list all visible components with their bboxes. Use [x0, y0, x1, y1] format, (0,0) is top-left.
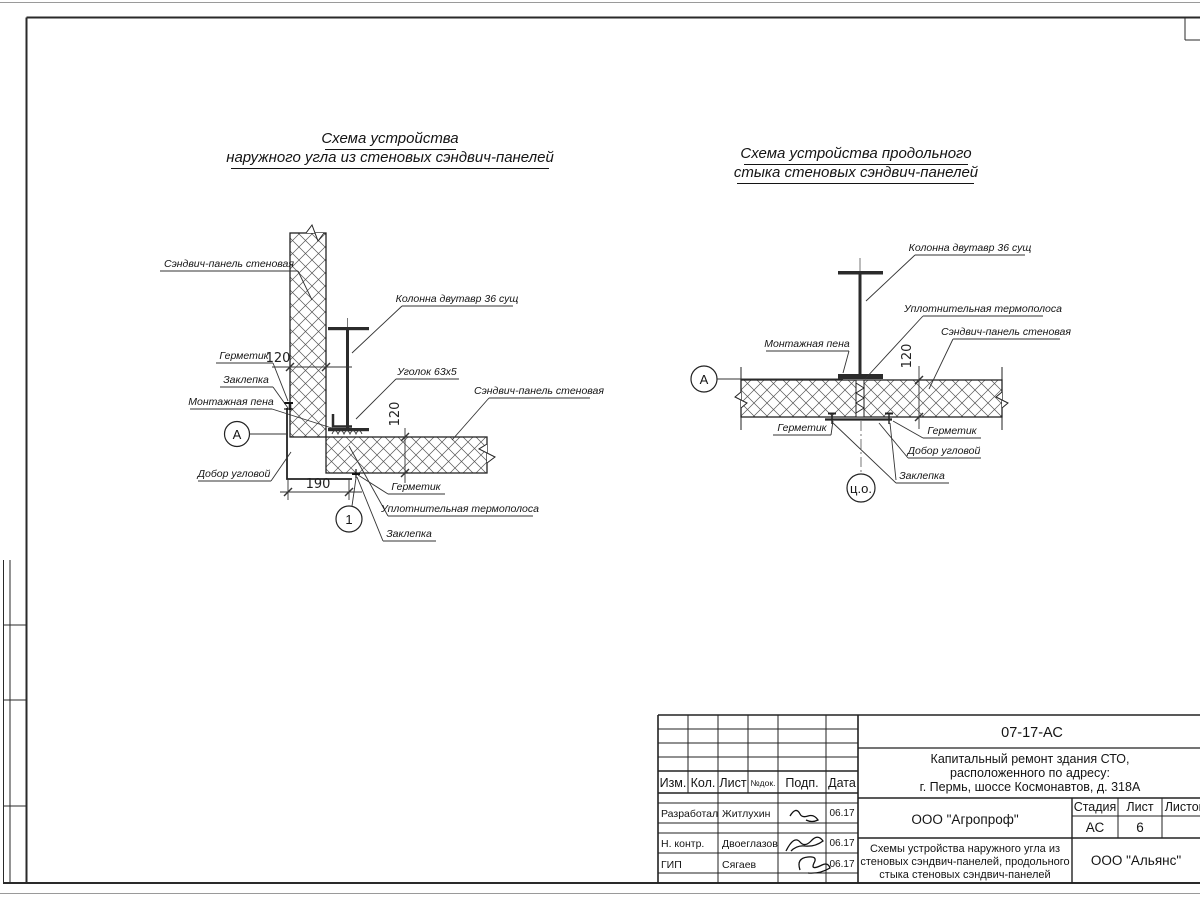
label-panel-horizontal: Сэндвич-панель стеновая	[452, 385, 604, 440]
right-title-line2: стыка стеновых сэндвич-панелей	[734, 164, 979, 181]
col-podp: Подп.	[785, 776, 818, 790]
dim-190: 190	[306, 477, 331, 492]
steel-angle	[333, 414, 352, 427]
svg-text:Уплотнительная термополоса: Уплотнительная термополоса	[380, 503, 539, 515]
row-role: ГИП	[661, 859, 682, 871]
label-foam: Монтажная пена	[764, 338, 850, 373]
left-title-line1: Схема устройства	[321, 130, 458, 147]
right-title-line1: Схема устройства продольного	[740, 145, 971, 162]
row-date: 06.17	[829, 859, 854, 870]
svg-text:Заклепка: Заклепка	[899, 470, 945, 482]
col-list: Лист	[719, 776, 746, 790]
dim-120-left: 120	[266, 351, 291, 366]
stage-label: Стадия	[1074, 800, 1117, 814]
project-line1: Капитальный ремонт здания СТО,	[931, 752, 1130, 766]
svg-text:Добор угловой: Добор угловой	[907, 445, 981, 457]
svg-text:Монтажная пена: Монтажная пена	[188, 396, 274, 408]
axis-marker-a: А	[225, 422, 289, 447]
label-panel-vertical: Сэндвич-панель стеновая	[160, 258, 312, 300]
label-corner-trim: Добор угловой	[197, 452, 291, 481]
panel-joint	[856, 380, 864, 417]
row-date: 06.17	[829, 838, 854, 849]
left-margin-stamp	[4, 560, 27, 883]
sheets-label: Листов	[1165, 800, 1200, 814]
svg-text:Заклепка: Заклепка	[386, 528, 432, 540]
svg-text:Сэндвич-панель стеновая: Сэндвич-панель стеновая	[164, 258, 294, 270]
col-izm: Изм.	[660, 776, 687, 790]
svg-text:1: 1	[345, 512, 352, 527]
org2-name: ООО "Альянс"	[1091, 853, 1181, 868]
row-role: Разработал	[661, 808, 718, 820]
sheet-title-line1: Схемы устройства наружного угла из	[870, 843, 1060, 855]
svg-text:Уголок 63х5: Уголок 63х5	[396, 366, 457, 378]
i-beam-column	[838, 258, 883, 379]
project-line2: расположенного по адресу:	[950, 766, 1110, 780]
dim-120-bottom: 120	[388, 402, 403, 427]
signature-3	[799, 857, 830, 873]
label-angle: Уголок 63х5	[356, 366, 459, 419]
label-sealant-right: Герметик	[893, 421, 981, 438]
svg-text:Герметик: Герметик	[777, 422, 827, 434]
sheet-value: 6	[1136, 820, 1144, 835]
svg-text:Уплотнительная термополоса: Уплотнительная термополоса	[903, 303, 1062, 315]
left-diagram-labels: Сэндвич-панель стеновая Колонна двутавр …	[160, 258, 604, 541]
drawing-sheet: Схема устройства наружного угла из стено…	[0, 0, 1200, 900]
svg-text:Добор угловой: Добор угловой	[197, 468, 271, 480]
svg-text:Герметик: Герметик	[927, 425, 977, 437]
svg-text:Сэндвич-панель стеновая: Сэндвич-панель стеновая	[474, 385, 604, 397]
label-sealant-left: Герметик	[773, 421, 833, 435]
svg-text:А: А	[700, 372, 709, 387]
sheet-title-line3: стыка стеновых сэндвич-панелей	[879, 869, 1050, 881]
sandwich-panel-horizontal	[326, 437, 495, 473]
svg-text:Сэндвич-панель стеновая: Сэндвич-панель стеновая	[941, 326, 1071, 338]
svg-text:Герметик: Герметик	[219, 350, 269, 362]
project-line3: г. Пермь, шоссе Космонавтов, д. 318А	[920, 780, 1141, 794]
left-title-line2: наружного угла из стеновых сэндвич-панел…	[226, 149, 554, 166]
svg-text:Колонна двутавр 36 сущ: Колонна двутавр 36 сущ	[909, 242, 1032, 254]
left-diagram: Схема устройства наружного угла из стено…	[160, 130, 604, 541]
col-ndok: №док.	[751, 778, 776, 788]
row-date: 06.17	[829, 808, 854, 819]
sheet-title-line2: стеновых сэндвич-панелей, продольного	[860, 856, 1069, 868]
row-role: Н. контр.	[661, 838, 704, 850]
svg-text:Монтажная пена: Монтажная пена	[764, 338, 850, 350]
label-column: Колонна двутавр 36 сущ	[866, 242, 1031, 301]
row-name: Житлухин	[722, 808, 771, 820]
col-data: Дата	[828, 776, 856, 790]
svg-text:ц.о.: ц.о.	[850, 481, 872, 496]
sandwich-panel-vertical	[290, 225, 326, 437]
label-column: Колонна двутавр 36 сущ	[352, 293, 518, 353]
center-axis-marker: ц.о.	[847, 474, 875, 502]
format-stamp-box	[1185, 18, 1200, 40]
sheet-label: Лист	[1126, 800, 1153, 814]
signature-2	[786, 837, 823, 851]
svg-text:Колонна двутавр 36 сущ: Колонна двутавр 36 сущ	[396, 293, 519, 305]
stage-value: АС	[1086, 820, 1105, 835]
label-sealant-bottom: Герметик	[358, 475, 445, 494]
dim-120-right: 120	[900, 344, 915, 369]
title-block: Изм. Кол. Лист №док. Подп. Дата Разработ…	[658, 715, 1200, 883]
svg-text:А: А	[233, 427, 242, 442]
right-diagram: Схема устройства продольного стыка стено…	[691, 145, 1071, 502]
drawing-canvas: Схема устройства наружного угла из стено…	[0, 0, 1200, 900]
signature-1	[790, 810, 818, 821]
row-name: Сягаев	[722, 859, 757, 871]
svg-text:Герметик: Герметик	[391, 481, 441, 493]
svg-text:Заклепка: Заклепка	[223, 374, 269, 386]
label-thermal-strip: Уплотнительная термополоса	[865, 303, 1062, 379]
col-kol: Кол.	[691, 776, 716, 790]
org1-name: ООО "Агропроф"	[911, 812, 1018, 827]
right-diagram-labels: Колонна двутавр 36 сущ Уплотнительная те…	[764, 242, 1071, 483]
row-name: Двоеглазов	[722, 838, 778, 850]
doc-number: 07-17-АС	[1001, 725, 1063, 741]
